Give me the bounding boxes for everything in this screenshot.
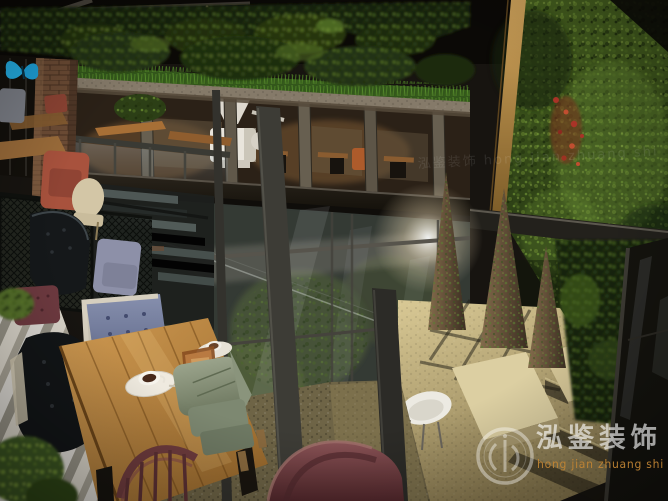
interior-photo: 泓鉴装饰 hong jian zhuang shi 泓鉴装饰 hong jian… [0, 0, 668, 501]
brand-name-pinyin: hong jian zhuang shi [537, 457, 664, 471]
brand-name-cn: 泓鉴装饰 [536, 423, 662, 454]
